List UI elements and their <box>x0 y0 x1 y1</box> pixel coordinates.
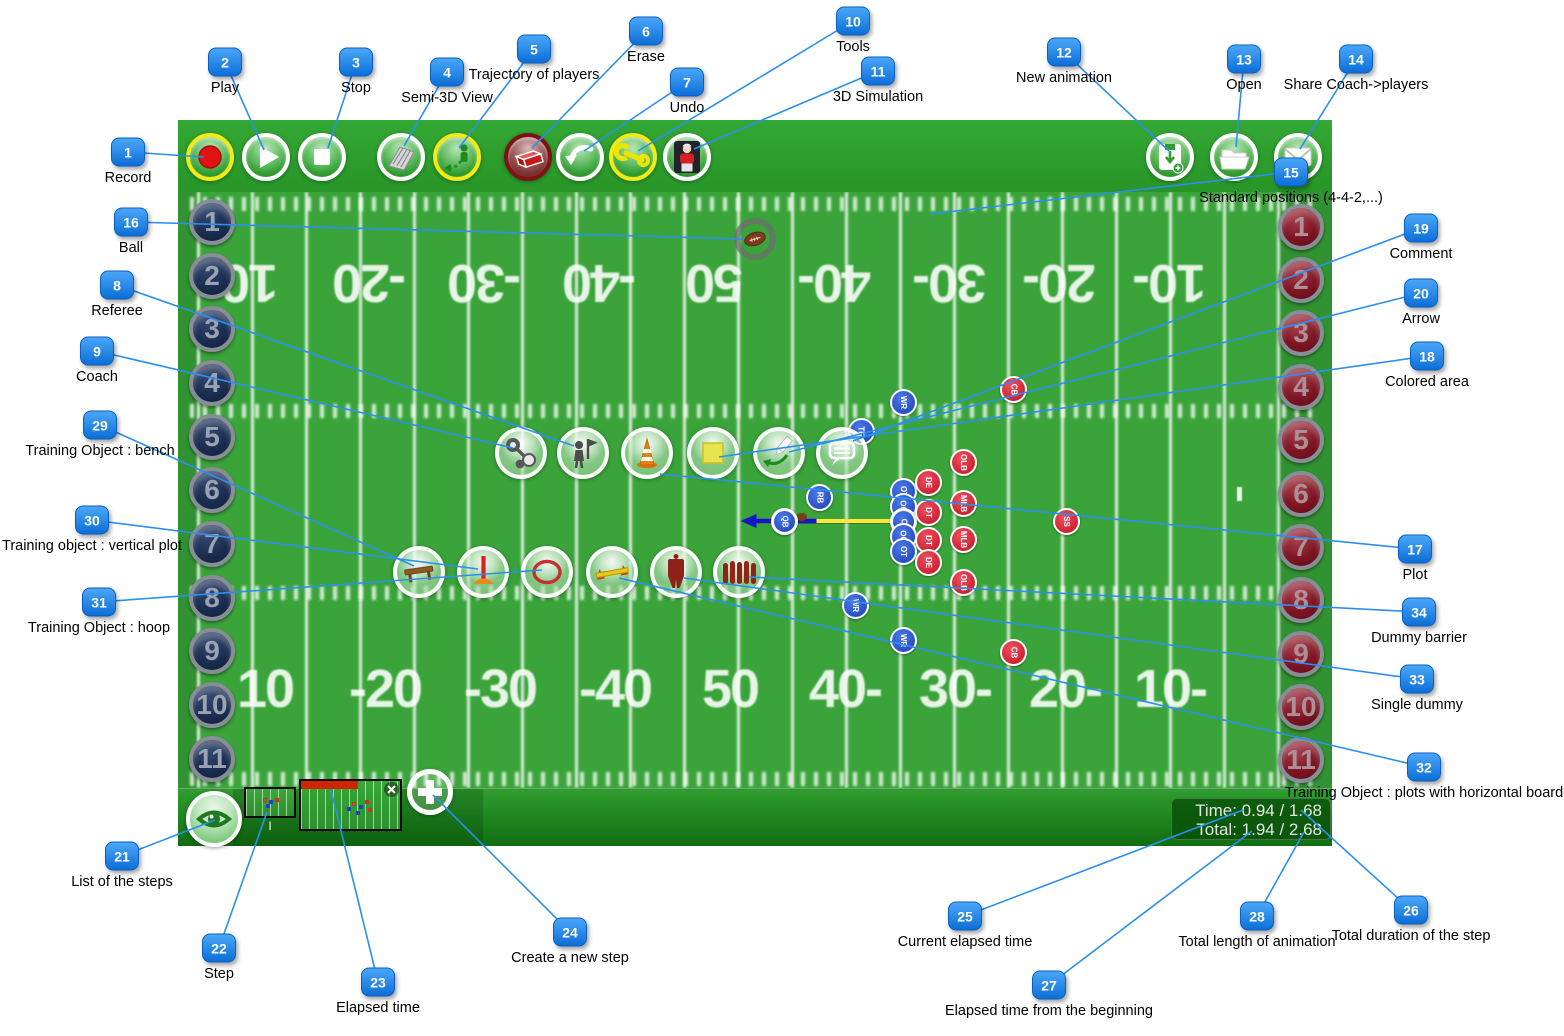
callout-label-12: New animation <box>1016 70 1112 86</box>
offense-token-qb[interactable]: QB <box>771 508 798 535</box>
wrench-icon <box>613 137 653 177</box>
defense-token-cb[interactable]: CB <box>1000 376 1027 403</box>
token-label: OLB <box>959 454 968 471</box>
toolbar <box>178 120 1332 194</box>
cone-icon <box>625 431 669 475</box>
hoop-icon <box>525 550 569 594</box>
callout-label-8: Referee <box>91 303 143 319</box>
yard-number-bottom: 50 <box>702 658 758 720</box>
hash-marks-row <box>190 197 1320 211</box>
arrow-tool-tool-button[interactable] <box>753 427 805 479</box>
callout-badge-26: 26 <box>1394 896 1428 925</box>
callout-badge-32: 32 <box>1407 753 1441 782</box>
callout-label-33: Single dummy <box>1371 697 1463 713</box>
callout-badge-11: 11 <box>861 57 895 86</box>
callout-label-7: Undo <box>670 100 705 116</box>
yard-line <box>1223 192 1226 788</box>
eye-icon <box>190 795 238 843</box>
callout-label-5: Trajectory of players <box>469 67 600 83</box>
offense-token-wr[interactable]: WR <box>890 389 917 416</box>
callout-badge-10: 10 <box>836 7 870 36</box>
home-player-token[interactable]: 1 <box>189 199 235 245</box>
callout-badge-1: 1 <box>111 138 145 167</box>
callout-label-1: Record <box>105 170 152 186</box>
callout-badge-17: 17 <box>1398 535 1432 564</box>
callout-label-31: Training Object : hoop <box>28 620 170 636</box>
home-player-token[interactable]: 4 <box>189 360 235 406</box>
callout-badge-22: 22 <box>202 934 236 963</box>
token-label: CB <box>1009 384 1018 396</box>
time-current-line: Time: 0.94 / 1.68 <box>1172 801 1322 820</box>
offense-token-wr[interactable]: WR <box>890 627 917 654</box>
token-label: MLB <box>959 531 968 548</box>
yard-number-top: -40 <box>564 252 636 314</box>
comment-tool-button[interactable] <box>816 427 868 479</box>
callout-badge-20: 20 <box>1404 279 1438 308</box>
away-player-token[interactable]: 11 <box>1278 737 1324 783</box>
yard-line <box>791 192 794 788</box>
callout-badge-3: 3 <box>339 48 373 77</box>
erase-button[interactable] <box>504 133 552 181</box>
callout-badge-29: 29 <box>83 411 117 440</box>
home-player-token[interactable]: 9 <box>189 628 235 674</box>
new-animation-button[interactable] <box>1146 133 1194 181</box>
callout-label-26: Total duration of the step <box>1332 928 1491 944</box>
semi-3d-view-button[interactable] <box>377 133 425 181</box>
colored-area-tool-button[interactable] <box>687 427 739 479</box>
callout-label-29: Training Object : bench <box>25 443 174 459</box>
callout-badge-14: 14 <box>1339 45 1373 74</box>
callout-label-34: Dummy barrier <box>1371 630 1467 646</box>
callout-badge-5: 5 <box>517 35 551 64</box>
steps-list-button[interactable] <box>186 791 242 847</box>
create-step-button[interactable] <box>407 769 453 815</box>
token-label: DE <box>924 477 933 488</box>
callout-label-14: Share Coach->players <box>1284 77 1429 93</box>
defense-token-cb[interactable]: CB <box>1000 639 1027 666</box>
offense-token-rb[interactable]: RB <box>806 484 833 511</box>
record-button[interactable] <box>186 133 234 181</box>
callout-badge-19: 19 <box>1404 214 1438 243</box>
hoop-tool-button[interactable] <box>521 546 573 598</box>
play-button[interactable] <box>242 133 290 181</box>
yard-number-top: -20 <box>334 252 406 314</box>
away-player-token[interactable]: 9 <box>1278 631 1324 677</box>
offense-token-wr[interactable]: WR <box>842 592 869 619</box>
home-player-token[interactable]: 2 <box>189 253 235 299</box>
callout-label-4: Semi-3D View <box>401 90 493 106</box>
callout-label-18: Colored area <box>1385 374 1469 390</box>
arrowdraw-icon <box>757 431 801 475</box>
defense-token-mlb[interactable]: MLB <box>950 526 977 553</box>
area-icon <box>691 431 735 475</box>
callout-label-30: Training object : vertical plot <box>2 538 182 554</box>
home-player-token[interactable]: 8 <box>189 575 235 621</box>
callout-badge-33: 33 <box>1400 665 1434 694</box>
callout-label-9: Coach <box>76 369 118 385</box>
semi3d-icon <box>381 137 421 177</box>
token-label: OLB <box>959 574 968 591</box>
callout-label-17: Plot <box>1403 567 1428 583</box>
callout-badge-6: 6 <box>629 17 663 46</box>
animation-app-window: 10-20-30-405040-30-20-10-10-20-30-405040… <box>178 120 1332 845</box>
yard-number-bottom: 10- <box>1134 658 1206 720</box>
callout-badge-28: 28 <box>1240 902 1274 931</box>
token-label: CB <box>1009 647 1018 659</box>
yard-number-bottom: 20- <box>1029 658 1101 720</box>
barrier-icon <box>717 550 761 594</box>
callout-label-24: Create a new step <box>511 950 629 966</box>
annotated-screenshot: 10-20-30-405040-30-20-10-10-20-30-405040… <box>0 0 1564 1036</box>
callout-label-2: Play <box>211 80 239 96</box>
referee-icon <box>561 431 605 475</box>
callout-badge-25: 25 <box>948 902 982 931</box>
callout-badge-7: 7 <box>670 68 704 97</box>
token-label: WR <box>851 599 860 612</box>
callout-badge-34: 34 <box>1402 598 1436 627</box>
defense-token-dt[interactable]: DT <box>915 499 942 526</box>
play-icon <box>246 137 286 177</box>
away-player-token[interactable]: 4 <box>1278 364 1324 410</box>
callout-badge-12: 12 <box>1047 38 1081 67</box>
step-thumbnail[interactable] <box>244 787 296 818</box>
away-player-token[interactable]: 5 <box>1278 417 1324 463</box>
time-total-line: Total: 1.94 / 2.68 <box>1172 820 1322 839</box>
yard-number-bottom: 40- <box>809 658 881 720</box>
callout-label-15: Standard positions (4-4-2,...) <box>1199 190 1383 206</box>
newanim-icon <box>1150 137 1190 177</box>
callout-label-3: Stop <box>341 80 371 96</box>
yard-number-bottom: -40 <box>579 658 651 720</box>
callout-label-27: Elapsed time from the beginning <box>945 1003 1153 1019</box>
tools-button[interactable] <box>609 133 657 181</box>
token-label: DE <box>924 557 933 568</box>
away-player-token[interactable]: 7 <box>1278 524 1324 570</box>
record-icon <box>190 137 230 177</box>
hash-marks-row <box>190 404 1320 418</box>
token-label: QB <box>780 516 789 528</box>
home-player-token[interactable]: 7 <box>189 521 235 567</box>
defense-token-olb[interactable]: OLB <box>950 569 977 596</box>
referee-tool-button[interactable] <box>557 427 609 479</box>
plot-cone-tool-button[interactable] <box>621 427 673 479</box>
callout-badge-4: 4 <box>430 58 464 87</box>
callout-badge-31: 31 <box>82 588 116 617</box>
steps-bar: I Time: 0.94 / 1.68 Total <box>178 788 1332 846</box>
stop-button[interactable] <box>298 133 346 181</box>
defense-token-ss[interactable]: SS <box>1053 508 1080 535</box>
yard-line <box>1007 192 1010 788</box>
token-label: RB <box>815 492 824 504</box>
elapsed-time-bar <box>301 781 358 789</box>
callout-label-6: Erase <box>627 49 665 65</box>
comment-icon <box>820 431 864 475</box>
token-label: WR <box>899 396 908 409</box>
home-player-token[interactable]: 10 <box>189 682 235 728</box>
callout-label-22: Step <box>204 966 234 982</box>
token-label: SS <box>1062 516 1071 527</box>
away-player-token[interactable]: 1 <box>1278 204 1324 250</box>
callout-badge-24: 24 <box>553 918 587 947</box>
yard-number-top: 40- <box>799 252 871 314</box>
trajectory-of-players-button[interactable] <box>433 133 481 181</box>
callout-badge-13: 13 <box>1227 45 1261 74</box>
home-player-token[interactable]: 6 <box>189 467 235 513</box>
callout-label-16: Ball <box>119 240 143 256</box>
callout-badge-16: 16 <box>114 208 148 237</box>
whistle-icon <box>499 431 543 475</box>
dummy-icon <box>654 550 698 594</box>
undo-button[interactable] <box>556 133 604 181</box>
callout-badge-30: 30 <box>75 506 109 535</box>
bench-tool-button[interactable] <box>393 546 445 598</box>
defense-token-olb[interactable]: OLB <box>950 449 977 476</box>
trajectory-icon <box>437 137 477 177</box>
yard-number-bottom: -20 <box>349 658 421 720</box>
undo-icon <box>560 137 600 177</box>
callout-badge-9: 9 <box>80 337 114 366</box>
goal-mark <box>1237 487 1242 501</box>
yard-number-top: -30 <box>449 252 521 314</box>
away-player-token[interactable]: 6 <box>1278 471 1324 517</box>
yard-number-bottom: 30- <box>919 658 991 720</box>
step-thumbnail-selected[interactable] <box>299 779 402 831</box>
yard-number-top: 20- <box>1024 252 1096 314</box>
coach-whistle-tool-button[interactable] <box>495 427 547 479</box>
callout-label-21: List of the steps <box>71 874 173 890</box>
football-icon <box>740 224 770 254</box>
folder-icon <box>1214 137 1254 177</box>
stop-icon <box>302 137 342 177</box>
callout-badge-21: 21 <box>105 842 139 871</box>
yard-number-bottom: 10 <box>237 658 293 720</box>
token-label: OT <box>899 546 908 557</box>
yard-number-top: 10- <box>1134 252 1206 314</box>
callout-label-10: Tools <box>836 39 870 55</box>
dummy-barrier-tool-button[interactable] <box>713 546 765 598</box>
away-player-token[interactable]: 10 <box>1278 684 1324 730</box>
sim3d-icon <box>667 137 707 177</box>
3d-simulation-button[interactable] <box>663 133 711 181</box>
away-player-token[interactable]: 3 <box>1278 310 1324 356</box>
yard-line <box>683 192 686 788</box>
callout-badge-2: 2 <box>208 48 242 77</box>
erase-icon <box>508 137 548 177</box>
close-icon <box>384 782 399 797</box>
plus-icon <box>412 774 448 810</box>
single-dummy-tool-button[interactable] <box>650 546 702 598</box>
yard-number-bottom: -30 <box>464 658 536 720</box>
away-player-token[interactable]: 2 <box>1278 257 1324 303</box>
ball[interactable] <box>734 218 776 260</box>
callout-label-28: Total length of animation <box>1178 934 1335 950</box>
callout-label-32: Training Object : plots with horizontal … <box>1285 785 1563 801</box>
time-display: Time: 0.94 / 1.68 Total: 1.94 / 2.68 <box>1171 798 1331 840</box>
callout-badge-18: 18 <box>1410 342 1444 371</box>
callout-label-25: Current elapsed time <box>898 934 1033 950</box>
open-button[interactable] <box>1210 133 1258 181</box>
field-canvas[interactable]: 10-20-30-405040-30-20-10-10-20-30-405040… <box>178 192 1332 788</box>
callout-label-19: Comment <box>1390 246 1453 262</box>
bench-icon <box>397 550 441 594</box>
plots-horizontal-board-tool-button[interactable] <box>586 546 638 598</box>
vplot-icon <box>461 550 505 594</box>
hboard-icon <box>590 550 634 594</box>
token-label: WR <box>899 634 908 647</box>
offense-token-ot[interactable]: OT <box>890 538 917 565</box>
vertical-plot-tool-button[interactable] <box>457 546 509 598</box>
yard-line <box>1115 192 1118 788</box>
defense-token-mlb[interactable]: MLB <box>950 490 977 517</box>
callout-badge-23: 23 <box>361 968 395 997</box>
callout-badge-27: 27 <box>1032 971 1066 1000</box>
yard-number-top: 50 <box>687 252 743 314</box>
defense-token-de[interactable]: DE <box>915 469 942 496</box>
away-player-token[interactable]: 8 <box>1278 577 1324 623</box>
callout-label-20: Arrow <box>1402 311 1440 327</box>
token-label: DT <box>924 535 933 546</box>
callout-badge-15: 15 <box>1274 158 1308 187</box>
home-player-token[interactable]: 5 <box>189 414 235 460</box>
callout-label-11: 3D Simulation <box>833 89 923 105</box>
defense-token-de[interactable]: DE <box>915 549 942 576</box>
yard-line <box>305 192 308 788</box>
token-label: DT <box>924 507 933 518</box>
callout-badge-8: 8 <box>100 271 134 300</box>
home-player-token[interactable]: 3 <box>189 306 235 352</box>
step-number-label: I <box>244 819 296 833</box>
close-step-button[interactable] <box>384 782 399 797</box>
home-player-token[interactable]: 11 <box>189 736 235 782</box>
callout-label-23: Elapsed time <box>336 1000 420 1016</box>
token-label: MLB <box>959 495 968 512</box>
yard-number-top: 30- <box>914 252 986 314</box>
callout-label-13: Open <box>1226 77 1261 93</box>
